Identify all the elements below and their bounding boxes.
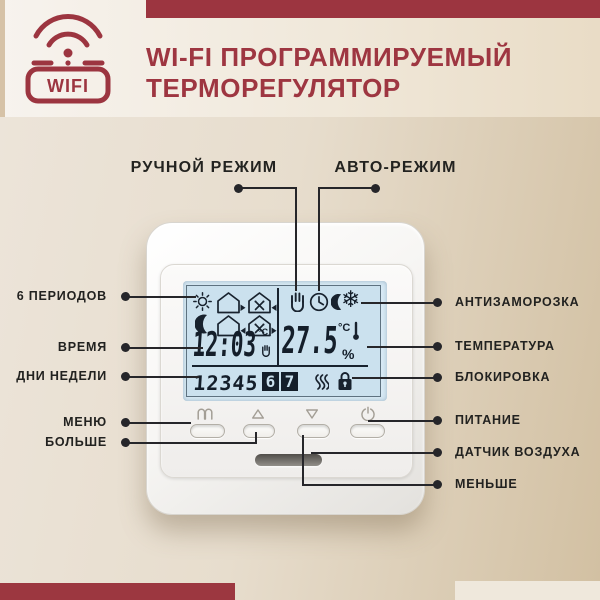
label-lock: БЛОКИРОВКА xyxy=(455,370,550,384)
hand-small-icon xyxy=(261,344,271,357)
power-button xyxy=(350,424,385,438)
up-button xyxy=(243,424,275,438)
title-line-1: WI-FI ПРОГРАММИРУЕМЫЙ xyxy=(146,42,512,73)
day-7-active: 7 xyxy=(281,372,298,391)
day-5: 5 xyxy=(244,371,259,395)
title-line-2: ТЕРМОРЕГУЛЯТОР xyxy=(146,73,512,104)
house-out-icon xyxy=(215,291,246,314)
lcd-divider xyxy=(277,288,279,366)
label-menu: МЕНЮ xyxy=(63,415,107,429)
label-manual-mode: РУЧНОЙ РЕЖИМ xyxy=(108,159,300,177)
hand-icon xyxy=(289,291,306,312)
callout-line-manual-v xyxy=(295,187,297,291)
day-6-active: 6 xyxy=(262,372,279,391)
header-left-strip xyxy=(0,0,5,117)
callout-line-temperature xyxy=(367,346,437,348)
callout-line-periods xyxy=(126,296,196,298)
callout-line-less-h xyxy=(302,484,437,486)
label-antifreeze: АНТИЗАМОРОЗКА xyxy=(455,295,579,309)
product-infographic: WIFI WI-FI ПРОГРАММИРУЕМЫЙ ТЕРМОРЕГУЛЯТО… xyxy=(0,0,600,600)
label-auto-mode: АВТО-РЕЖИМ xyxy=(313,159,478,177)
down-arrow-icon xyxy=(306,409,318,419)
callout-line-more-v xyxy=(255,432,257,444)
lcd-separator xyxy=(192,365,368,367)
bottom-accent-bar xyxy=(0,583,235,600)
callout-line-auto-h xyxy=(319,187,376,189)
callout-line-antifreeze xyxy=(361,302,437,304)
label-air-sensor: ДАТЧИК ВОЗДУХА xyxy=(455,445,580,459)
label-6-periods: 6 ПЕРИОДОВ xyxy=(17,289,107,303)
callout-line-auto-v xyxy=(318,187,320,291)
bottom-right-box xyxy=(455,581,600,600)
clock-icon xyxy=(309,292,329,312)
callout-line-manual-h xyxy=(238,187,297,189)
label-more: БОЛЬШЕ xyxy=(45,435,107,449)
callout-line-time xyxy=(126,347,203,349)
callout-line-less-v xyxy=(302,435,304,486)
callout-line-sensor xyxy=(311,452,437,454)
menu-button xyxy=(190,424,225,438)
callout-line-power xyxy=(368,420,437,422)
top-accent-bar xyxy=(146,0,600,18)
page-title: WI-FI ПРОГРАММИРУЕМЫЙ ТЕРМОРЕГУЛЯТОР xyxy=(146,42,512,104)
lock-icon xyxy=(337,370,353,391)
heating-waves-icon xyxy=(314,371,329,390)
thermometer-icon xyxy=(352,321,360,341)
up-arrow-icon xyxy=(252,409,264,419)
label-weekdays: ДНИ НЕДЕЛИ xyxy=(16,369,107,383)
snowflake-icon: ❄ xyxy=(341,288,360,312)
label-temperature: ТЕМПЕРАТУРА xyxy=(455,339,555,353)
sun-icon xyxy=(193,292,212,311)
label-power: ПИТАНИЕ xyxy=(455,413,521,427)
callout-line-lock xyxy=(352,377,437,379)
humidity-symbol: % xyxy=(342,346,354,362)
label-time: ВРЕМЯ xyxy=(58,340,107,354)
time-unit: °C xyxy=(258,327,268,337)
wifi-icon: WIFI xyxy=(22,6,114,106)
callout-line-weekdays xyxy=(126,376,199,378)
callout-line-more-h xyxy=(126,442,257,444)
temperature-unit: °C xyxy=(338,322,350,334)
power-icon xyxy=(360,406,376,421)
wifi-badge-text: WIFI xyxy=(47,76,89,96)
temperature-display: 27.5 xyxy=(280,319,339,362)
callout-line-menu xyxy=(126,422,191,424)
air-sensor-slot xyxy=(255,454,322,466)
house-fan-in-icon xyxy=(246,291,277,314)
menu-book-icon xyxy=(197,408,213,420)
time-display: 12:03 xyxy=(191,325,257,365)
label-less: МЕНЬШЕ xyxy=(455,477,517,491)
